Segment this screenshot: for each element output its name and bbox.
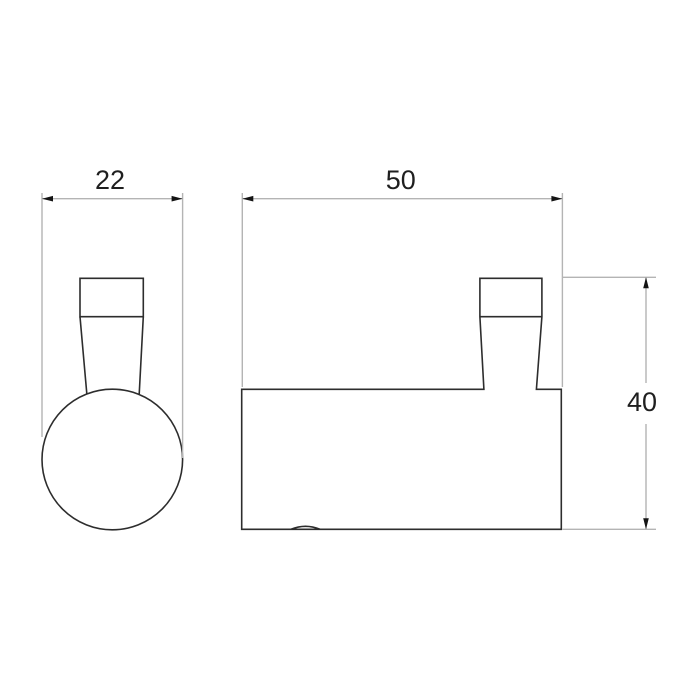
side-view [242, 278, 562, 529]
dimension-side-height: 40 [562, 277, 657, 529]
dimension-front-width-arrow-left [42, 196, 53, 202]
dimension-side-width-label: 50 [386, 165, 416, 195]
dimension-side-width-arrow-right [551, 196, 562, 202]
dimension-front-width-arrow-right [172, 196, 183, 202]
dimension-front-width-label: 22 [95, 165, 125, 195]
dimension-side-height-arrow-bottom [643, 518, 649, 529]
front-view-stem-taper [80, 317, 143, 395]
technical-drawing: 22 50 40 [0, 0, 700, 700]
dimension-side-width-arrow-left [242, 196, 253, 202]
dimension-side-width: 50 [242, 165, 562, 387]
dimension-front-width-extension-lines [42, 193, 183, 458]
front-view [42, 278, 183, 530]
front-view-cap-rect [80, 278, 143, 316]
drawing-canvas: 22 50 40 [0, 0, 700, 700]
dimension-side-height-arrow-top [643, 277, 649, 288]
dimension-side-height-label: 40 [627, 387, 657, 417]
front-view-knob-circle [42, 389, 183, 530]
dimension-front-width: 22 [42, 165, 183, 458]
dimension-side-width-extension-lines [242, 193, 562, 387]
